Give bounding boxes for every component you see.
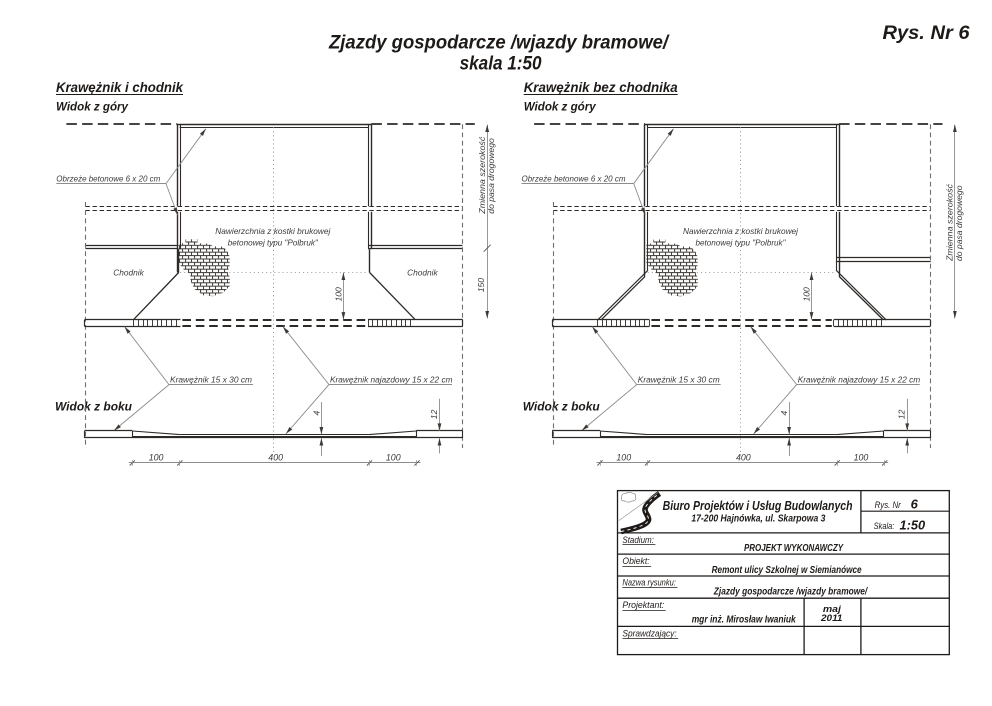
svg-text:Zjazdy gospodarcze /wjazdy bra: Zjazdy gospodarcze /wjazdy bramowe/ [328, 32, 670, 54]
svg-text:Sprawdzający:: Sprawdzający: [622, 628, 677, 638]
svg-text:12: 12 [429, 409, 439, 419]
svg-text:Skala:: Skala: [874, 521, 895, 531]
svg-text:skala 1:50: skala 1:50 [460, 53, 542, 75]
svg-text:Widok z góry: Widok z góry [524, 99, 597, 113]
svg-text:Zjazdy gospodarcze /wjazdy bra: Zjazdy gospodarcze /wjazdy bramowe/ [713, 587, 868, 598]
svg-text:100: 100 [616, 453, 631, 463]
svg-text:Rys. Nr 6: Rys. Nr 6 [883, 22, 970, 44]
svg-text:6: 6 [911, 496, 919, 511]
svg-text:12: 12 [897, 409, 907, 419]
svg-text:100: 100 [149, 453, 164, 463]
svg-text:100: 100 [854, 453, 869, 463]
svg-text:Widok z góry: Widok z góry [56, 99, 129, 113]
svg-text:400: 400 [736, 453, 751, 463]
svg-text:Widok z boku: Widok z boku [55, 399, 133, 413]
svg-text:1:50: 1:50 [899, 518, 925, 533]
svg-text:Remont ulicy Szkolnej w Siemia: Remont ulicy Szkolnej w Siemianówce [712, 565, 862, 576]
svg-text:mgr inż. Mirosław Iwaniuk: mgr inż. Mirosław Iwaniuk [692, 615, 796, 626]
svg-text:Obrzeże betonowe 6 x 20 cm: Obrzeże betonowe 6 x 20 cm [522, 174, 626, 184]
svg-text:100: 100 [802, 287, 812, 302]
svg-text:Widok z boku: Widok z boku [523, 399, 601, 413]
svg-text:Nawierzchnia z kostki brukowej: Nawierzchnia z kostki brukowej [683, 226, 799, 236]
svg-text:Krawężnik bez chodnika: Krawężnik bez chodnika [524, 80, 678, 95]
svg-text:Nawierzchnia z kostki brukowej: Nawierzchnia z kostki brukowej [215, 226, 331, 236]
svg-text:Krawężnik 15 x 30 cm: Krawężnik 15 x 30 cm [638, 374, 720, 384]
svg-text:Krawężnik 15 x 30 cm: Krawężnik 15 x 30 cm [170, 374, 252, 384]
svg-text:400: 400 [268, 453, 283, 463]
svg-text:Rys. Nr: Rys. Nr [875, 500, 902, 510]
svg-text:Krawężnik najazdowy 15 x 22 cm: Krawężnik najazdowy 15 x 22 cm [330, 374, 453, 384]
svg-text:100: 100 [386, 453, 401, 463]
svg-text:17-200 Hajnówka, ul. Skarpowa: 17-200 Hajnówka, ul. Skarpowa 3 [691, 514, 825, 525]
svg-text:do pasa drogowego: do pasa drogowego [954, 185, 964, 261]
svg-text:Stadium:: Stadium: [622, 535, 654, 545]
svg-text:2011: 2011 [820, 612, 842, 623]
svg-text:4: 4 [312, 411, 322, 416]
svg-text:Krawężnik i chodnik: Krawężnik i chodnik [56, 80, 184, 95]
svg-text:betonowej typu "Polbruk": betonowej typu "Polbruk" [696, 238, 787, 248]
svg-text:4: 4 [779, 411, 789, 416]
svg-text:Projektant:: Projektant: [622, 600, 664, 610]
svg-text:Biuro Projektów i Usług Budowl: Biuro Projektów i Usług Budowlanych [663, 499, 853, 513]
svg-text:Obiekt:: Obiekt: [622, 556, 650, 566]
svg-text:do pasa drogowego: do pasa drogowego [486, 138, 496, 214]
svg-text:Nazwa rysunku:: Nazwa rysunku: [622, 577, 676, 587]
svg-text:100: 100 [334, 287, 344, 302]
svg-text:Obrzeże betonowe 6 x 20 cm: Obrzeże betonowe 6 x 20 cm [56, 174, 160, 184]
svg-text:Krawężnik najazdowy 15 x 22 cm: Krawężnik najazdowy 15 x 22 cm [798, 374, 921, 384]
svg-text:PROJEKT WYKONAWCZY: PROJEKT WYKONAWCZY [744, 543, 844, 554]
svg-text:Chodnik: Chodnik [113, 268, 144, 278]
svg-text:betonowej typu "Polbruk": betonowej typu "Polbruk" [228, 238, 319, 248]
svg-text:Chodnik: Chodnik [407, 268, 438, 278]
svg-text:150: 150 [476, 278, 486, 293]
